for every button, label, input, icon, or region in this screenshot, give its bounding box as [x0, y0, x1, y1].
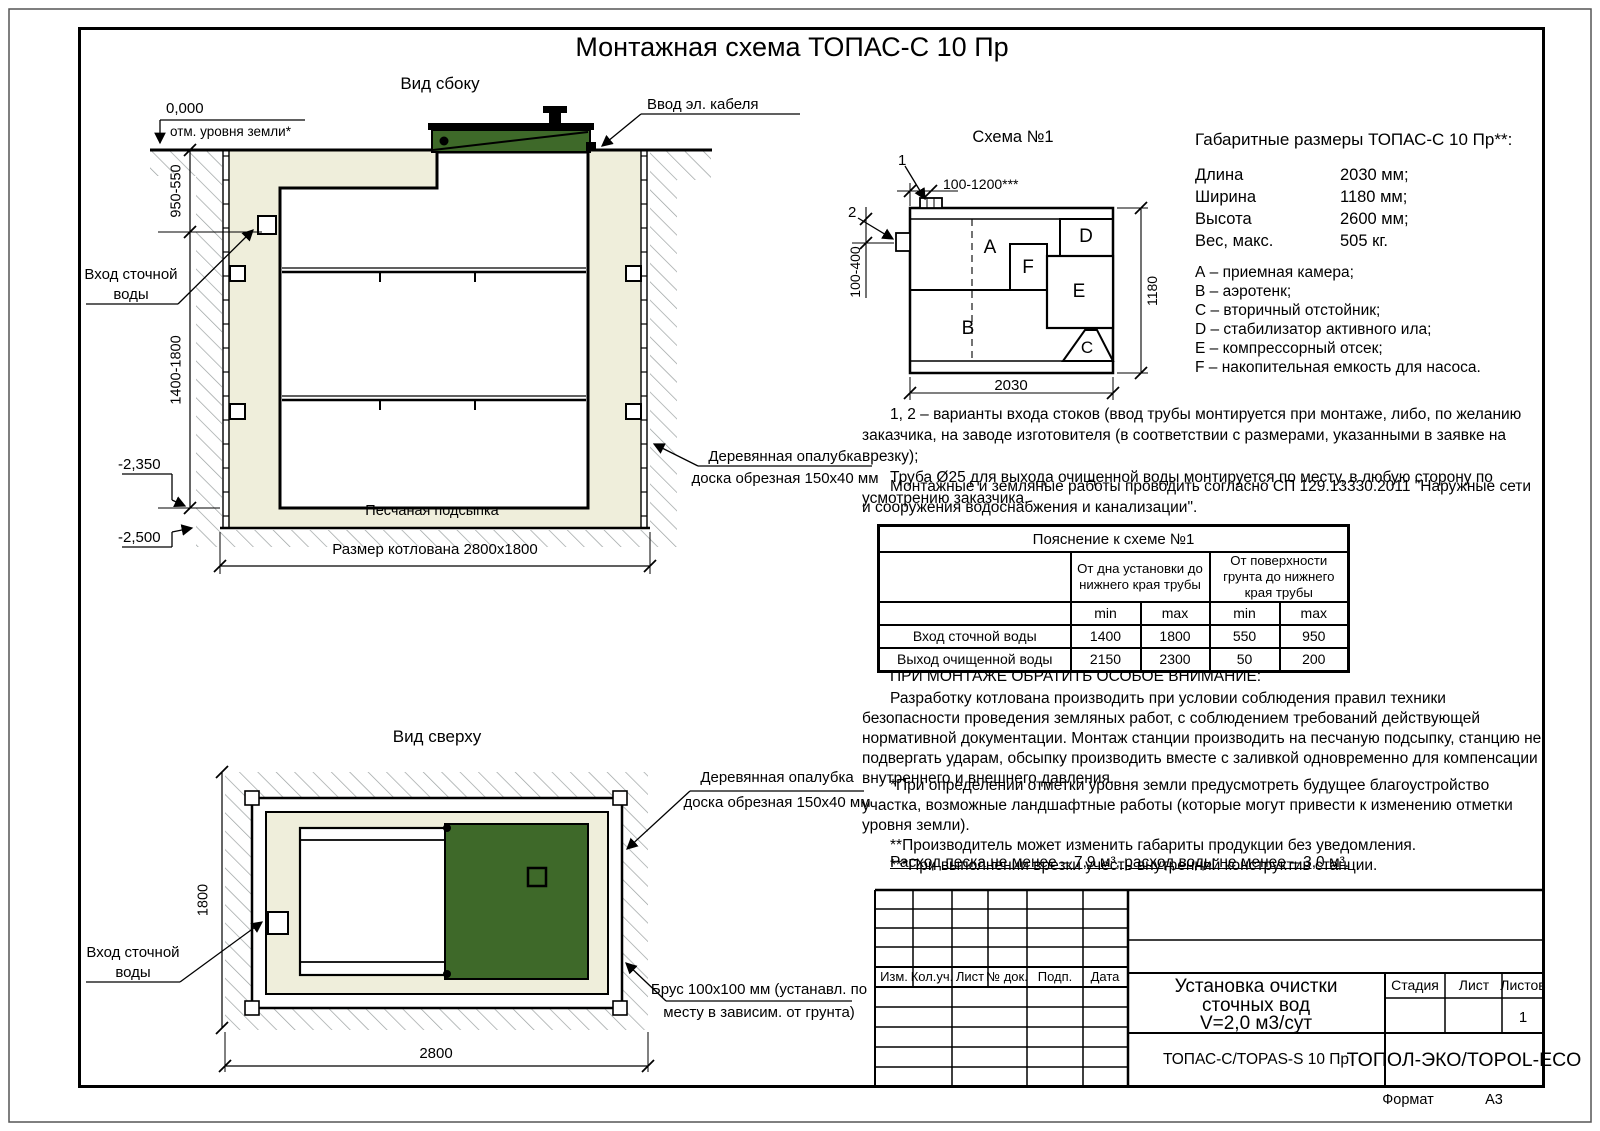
schema-dim-top: 100-1200*** — [943, 176, 1019, 192]
timber-label-line1: Брус 100x100 мм (устанавл. по — [651, 981, 867, 998]
level-mark-2350: -2,350 — [118, 456, 161, 473]
min-header: min — [1071, 602, 1141, 625]
legend-item: С – вторичный отстойник; — [1195, 302, 1380, 320]
sheets-header: Листов — [1500, 977, 1546, 993]
stage-header: Стадия — [1391, 977, 1439, 993]
schema-dim-right: 1180 — [1144, 276, 1160, 306]
spec-value: 2030 мм; — [1340, 166, 1409, 185]
table-row: Вход сточной воды 1400 1800 550 950 — [879, 625, 1349, 648]
doc-title-line3: V=2,0 м3/сут — [1200, 1013, 1312, 1035]
format-value: А3 — [1485, 1092, 1503, 1109]
row-name: Выход очищенной воды — [879, 648, 1071, 672]
legend-item: В – аэротенк; — [1195, 283, 1291, 301]
tb-col-koluch: Кол.уч. — [911, 970, 954, 985]
min-header: min — [1210, 602, 1280, 625]
spec-value: 1180 мм; — [1340, 188, 1407, 207]
table-row: Выход очищенной воды 2150 2300 50 200 — [879, 648, 1349, 672]
compartment-f: F — [1022, 257, 1034, 279]
sheets-value: 1 — [1519, 1009, 1527, 1026]
sand-bed-label: Песчаная подсыпка — [365, 503, 498, 520]
legend-item: Е – компрессорный отсек; — [1195, 340, 1383, 358]
max-header: max — [1280, 602, 1349, 625]
dim-1800: 1800 — [196, 884, 213, 916]
footnote-1: *При определении отметки уровня земли пр… — [862, 776, 1542, 836]
ground-level-note: отм. уровня земли* — [170, 124, 291, 140]
timber-label-line2: месту в зависим. от грунта) — [663, 1004, 855, 1021]
top-view-title: Вид сверху — [393, 727, 482, 747]
dim-depth-upper: 950-550 — [169, 164, 186, 217]
formwork-label-line2: доска обрезная 150x40 мм — [691, 470, 878, 487]
max-header: max — [1141, 602, 1210, 625]
specs-title: Габаритные размеры ТОПАС-С 10 Пр**: — [1195, 130, 1512, 150]
row-value: 1400 — [1071, 625, 1141, 648]
row-value: 950 — [1280, 625, 1349, 648]
tb-col-data: Дата — [1091, 970, 1120, 985]
spec-label: Вес, макс. — [1195, 232, 1273, 251]
spec-value: 2600 мм; — [1340, 210, 1409, 229]
pipe-table-group2: От поверхности грунта до нижнего края тр… — [1210, 552, 1349, 602]
schema-title: Схема №1 — [972, 128, 1053, 147]
inlet-label-line2: воды — [113, 286, 148, 303]
top-inlet-label-line1: Вход сточной — [86, 944, 179, 961]
tb-col-izm: Изм. — [880, 970, 908, 985]
company-label: ТОПОЛ-ЭКО/TOPOL-ECO — [1347, 1049, 1582, 1071]
tb-col-ndok: № док. — [986, 970, 1028, 985]
compartment-b: B — [962, 318, 975, 340]
row-value: 200 — [1280, 648, 1349, 672]
legend-item: D – стабилизатор активного ила; — [1195, 321, 1431, 339]
top-formwork-label-line2: доска обрезная 150x40 мм — [683, 794, 870, 811]
spec-value: 505 кг. — [1340, 232, 1388, 251]
top-inlet-label-line2: воды — [115, 964, 150, 981]
inlet-label-line1: Вход сточной — [84, 266, 177, 283]
attention-body: Разработку котлована производить при усл… — [862, 689, 1542, 789]
compartment-a: A — [984, 237, 997, 259]
spec-label: Ширина — [1195, 188, 1256, 207]
format-label: Формат — [1382, 1092, 1434, 1109]
pit-size-label: Размер котлована 2800x1800 — [332, 541, 537, 558]
row-name: Вход сточной воды — [879, 625, 1071, 648]
formwork-label-line1: Деревянная опалубка — [708, 448, 861, 465]
footnote-2: **Производитель может изменить габариты … — [862, 836, 1542, 856]
dim-depth-lower: 1400-1800 — [169, 335, 186, 404]
consumption-note: Расход песка не менее – 7,9 м³, расход в… — [890, 854, 1349, 872]
tb-col-podp: Подп. — [1038, 970, 1073, 985]
pipe-table-group1: От дна установки до нижнего края трубы — [1071, 552, 1210, 602]
drawing-sheet: Монтажная схема ТОПАС-С 10 Пр Вид сбоку … — [0, 0, 1600, 1131]
spec-label: Длина — [1195, 166, 1243, 185]
row-value: 1800 — [1141, 625, 1210, 648]
pipe-table: Пояснение к схеме №1 От дна установки до… — [877, 524, 1350, 673]
note-works: Монтажные и земляные работы проводить со… — [862, 476, 1540, 518]
row-value: 550 — [1210, 625, 1280, 648]
schema-dim-left: 100-400 — [847, 246, 863, 297]
row-value: 50 — [1210, 648, 1280, 672]
row-value: 2300 — [1141, 648, 1210, 672]
side-view-title: Вид сбоку — [400, 74, 479, 94]
pipe-table-corner — [879, 552, 1071, 602]
dim-2800: 2800 — [419, 1045, 452, 1062]
legend-item: F – накопительная емкость для насоса. — [1195, 359, 1481, 377]
top-formwork-label-line1: Деревянная опалубка — [700, 769, 853, 786]
compartment-d: D — [1079, 226, 1093, 248]
pipe-table-title: Пояснение к схеме №1 — [879, 526, 1349, 553]
page-title: Монтажная схема ТОПАС-С 10 Пр — [575, 32, 1008, 63]
tb-col-list: Лист — [956, 970, 984, 985]
zero-level-mark: 0,000 — [166, 100, 204, 117]
sheet-header: Лист — [1459, 977, 1489, 993]
spec-label: Высота — [1195, 210, 1252, 229]
schema-marker-2: 2 — [848, 204, 856, 221]
model-label: ТОПАС-С/TOPAS-S 10 Пр — [1163, 1051, 1349, 1069]
row-value: 2150 — [1071, 648, 1141, 672]
legend-item: А – приемная камера; — [1195, 264, 1354, 282]
note-variants-1: 1, 2 – варианты входа стоков (ввод трубы… — [862, 404, 1540, 467]
compartment-c: C — [1081, 338, 1093, 358]
level-mark-2500: -2,500 — [118, 529, 161, 546]
schema-marker-1: 1 — [898, 152, 906, 169]
compartment-e: E — [1073, 281, 1086, 303]
schema-dim-bottom: 2030 — [994, 377, 1027, 394]
cable-entry-label: Ввод эл. кабеля — [647, 96, 759, 113]
